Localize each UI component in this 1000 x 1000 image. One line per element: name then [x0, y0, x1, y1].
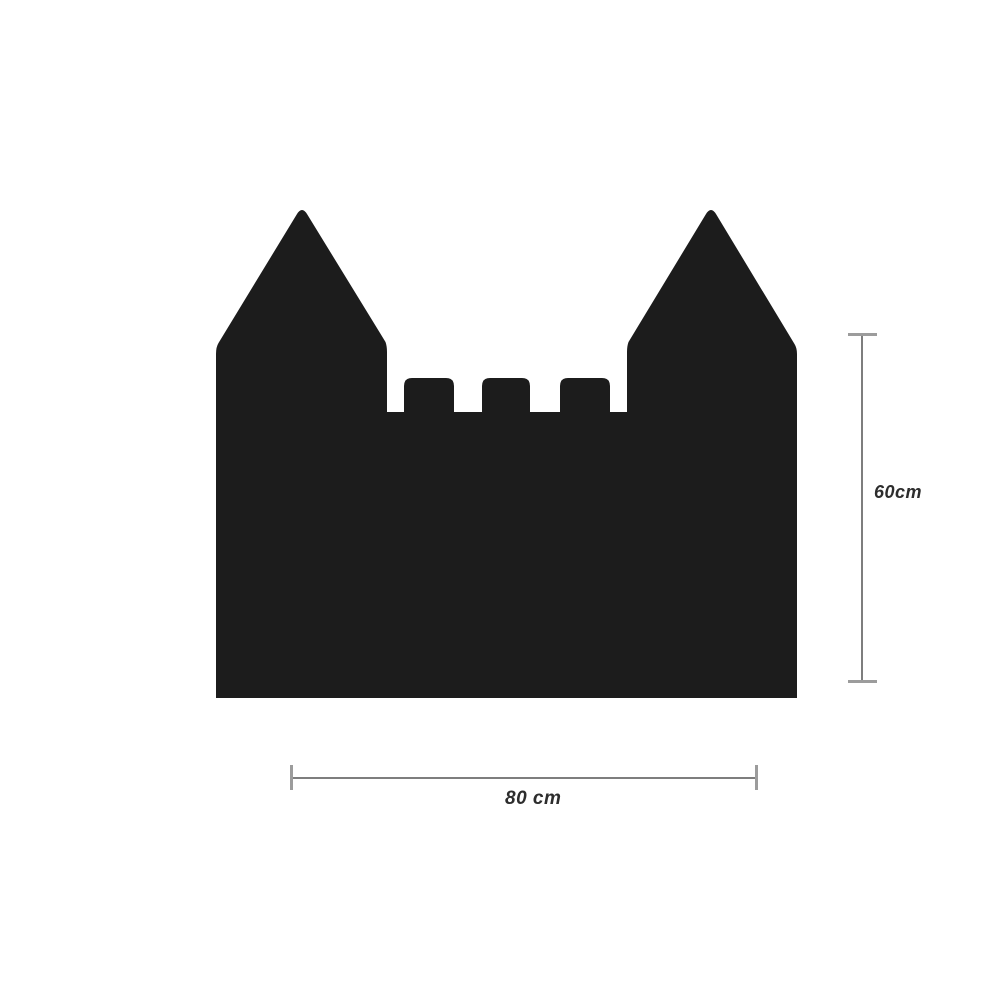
height-dimension-label: 60cm	[874, 482, 922, 503]
width-dimension-cap-left	[290, 765, 293, 790]
height-dimension-cap-bottom	[848, 680, 877, 683]
castle-silhouette-graphic	[0, 0, 1000, 1000]
width-dimension-cap-right	[755, 765, 758, 790]
height-dimension-line	[861, 334, 863, 682]
height-dimension-cap-top	[848, 333, 877, 336]
width-dimension-label: 80 cm	[505, 788, 561, 810]
castle-shape	[216, 210, 797, 698]
width-dimension-line	[291, 777, 757, 779]
product-image: 60cm 80 cm	[0, 0, 1000, 1000]
